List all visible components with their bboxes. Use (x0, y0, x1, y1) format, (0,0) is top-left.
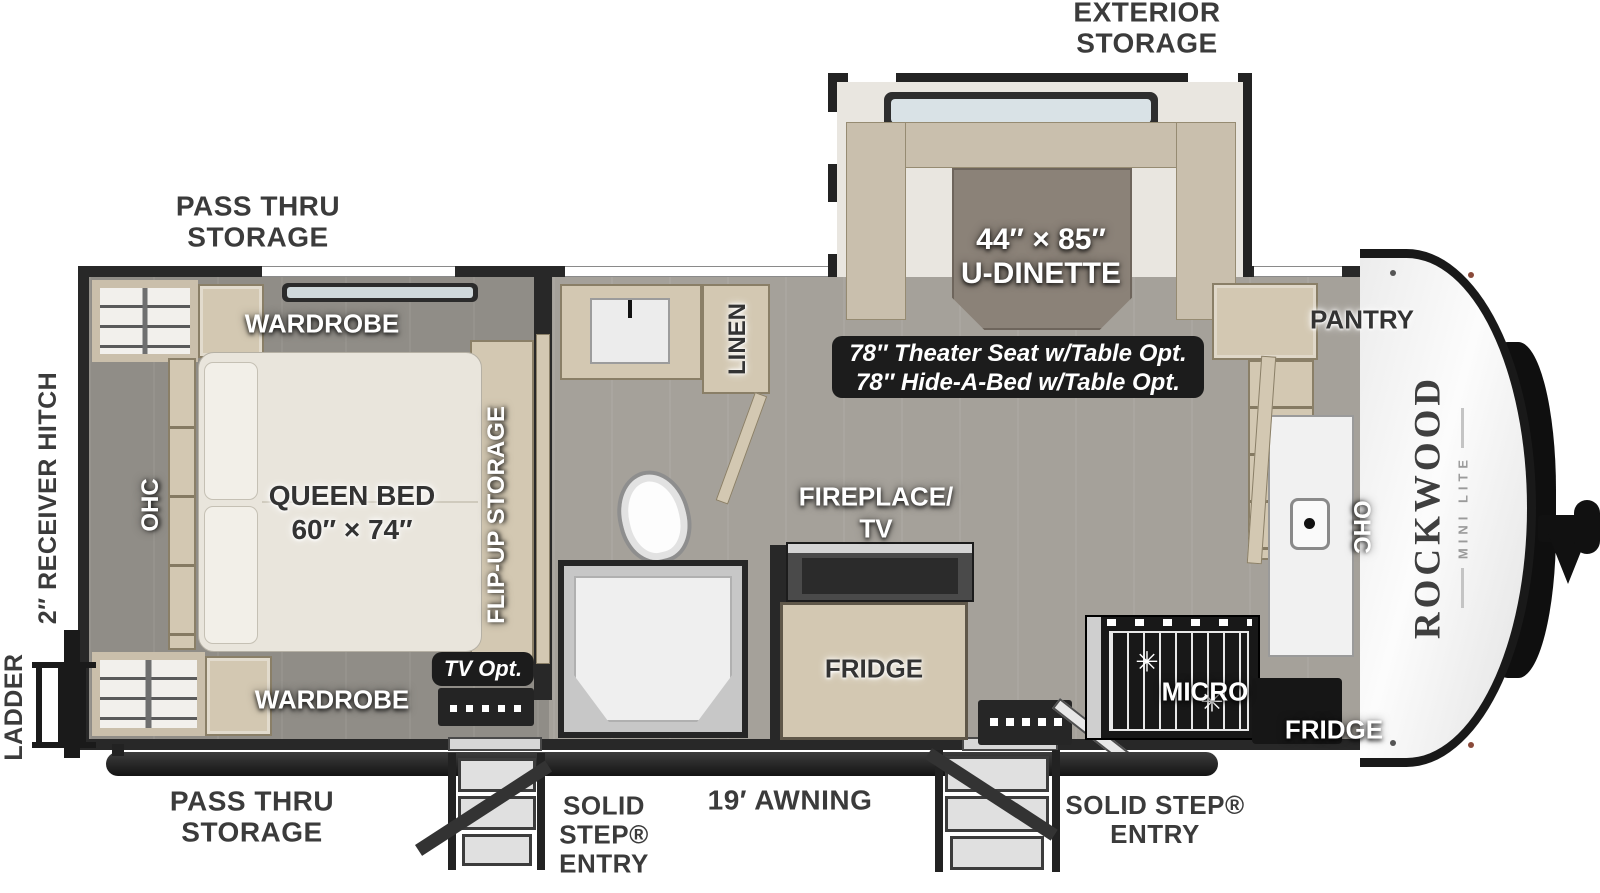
awning-label: 19′ AWNING (708, 784, 873, 815)
pantry-label: PANTRY (1310, 305, 1414, 336)
flip-up-storage-label: FLIP-UP STORAGE (483, 406, 511, 624)
bedroom-tv-dash-3 (482, 705, 489, 712)
floorplan-canvas: 44″ × 85″ U-DINETTE (0, 0, 1600, 893)
bedroom-tv-dash-1 (450, 705, 457, 712)
entry-right-line2: ENTRY (1065, 820, 1244, 849)
cap-rivet-bottom (1390, 740, 1396, 746)
island-fridge-label: FRIDGE (825, 654, 923, 685)
pass-thru-top-line1: PASS THRU (176, 191, 340, 222)
bedroom-tv-dash-4 (498, 705, 505, 712)
options-line-2: 78″ Hide-A-Bed w/Table Opt. (832, 368, 1204, 397)
fireplace-tv-console (786, 542, 974, 602)
step-tread-2c (950, 836, 1044, 870)
slide-skylight-glass (891, 99, 1151, 123)
entry-right-label: SOLID STEP® ENTRY (1065, 791, 1244, 849)
bedroom-ohc-label: OHC (137, 478, 165, 531)
entry-left-line2: STEP® (559, 820, 649, 849)
bedroom-tv-dash-2 (466, 705, 473, 712)
slide-window-left-1 (828, 112, 837, 164)
step-tread-1c (462, 834, 532, 866)
slide-window-top-1 (848, 73, 896, 82)
dinette-bench-left (846, 122, 906, 320)
queen-bed-label: QUEEN BED (269, 480, 435, 512)
pass-thru-bottom-label: PASS THRU STORAGE (170, 786, 334, 849)
options-badge: 78″ Theater Seat w/Table Opt. 78″ Hide-A… (832, 336, 1204, 398)
brand-rule-top (1461, 408, 1464, 448)
dinette-name-label: U-DINETTE (961, 257, 1121, 291)
micro-label: MICRO (1162, 677, 1249, 708)
burner-fan-icon: ✳ (1135, 646, 1158, 679)
pantry-cabinet (1212, 283, 1318, 360)
fireplace-label-line2: TV (859, 514, 892, 545)
pass-thru-bottom-line2: STORAGE (170, 817, 334, 848)
brand-rule-bottom (1461, 568, 1464, 608)
pass-thru-bottom-line1: PASS THRU (170, 786, 334, 817)
shower (558, 560, 748, 738)
entry-dash-3 (1022, 718, 1030, 726)
fireplace-label-line1: FIREPLACE/ (799, 482, 954, 513)
cap-marker-top (1468, 272, 1474, 278)
queen-bed-size-label: 60″ × 74″ (291, 514, 412, 546)
tv-opt-badge: TV Opt. (432, 652, 534, 686)
bedroom-tv-dash-5 (514, 705, 521, 712)
entry-dash-1 (990, 718, 998, 726)
exterior-storage-line2: STORAGE (1073, 28, 1220, 59)
ladder-icon-rung-3 (80, 662, 86, 748)
step-rail-right-2 (1052, 750, 1060, 872)
slide-window-left-2 (828, 202, 837, 254)
window-bath-top (565, 266, 830, 277)
pass-thru-top-label: PASS THRU STORAGE (176, 191, 340, 254)
ladder-label: LADDER (0, 653, 28, 760)
wardrobe-bottom-label: WARDROBE (255, 685, 410, 716)
entry-left-line3: ENTRY (559, 850, 649, 879)
entry-right-line1: SOLID STEP® (1065, 791, 1244, 820)
stove-side (1087, 617, 1101, 738)
pillow-top (204, 362, 258, 500)
receiver-hitch-label: 2″ RECEIVER HITCH (34, 372, 62, 624)
options-line-1: 78″ Theater Seat w/Table Opt. (832, 339, 1204, 368)
step-rail-left-1 (448, 753, 456, 870)
exterior-storage-label: EXTERIOR STORAGE (1073, 0, 1220, 59)
entry-left-label: SOLID STEP® ENTRY (559, 791, 649, 878)
bedroom-skylight (282, 283, 478, 302)
cap-rivet-top (1390, 270, 1396, 276)
kitchen-ohc-label: OHC (1347, 500, 1375, 553)
slide-window-top-2 (1188, 73, 1238, 82)
awning-bracket (112, 744, 124, 756)
entry-left-line1: SOLID (559, 791, 649, 820)
entry-dash-4 (1038, 718, 1046, 726)
window-kitchen-top (1254, 266, 1342, 277)
pass-thru-top-line2: STORAGE (176, 222, 340, 253)
wardrobe-top-label: WARDROBE (245, 309, 400, 340)
shelf-rear-bottom (92, 652, 205, 736)
entry-dash-2 (1006, 718, 1014, 726)
entry-dash-5 (1054, 718, 1062, 726)
bath-faucet-icon (628, 300, 632, 318)
stove-knobs (1107, 619, 1252, 626)
fireplace-mantel (788, 544, 972, 553)
rear-bumper (64, 630, 80, 758)
brand-model: MINI LITE (1456, 455, 1471, 559)
cap-marker-bottom (1468, 742, 1474, 748)
bedroom-ohc-cabinet (168, 358, 196, 650)
bedroom-skylight-glass (287, 287, 473, 298)
ladder-icon-rung-1 (36, 662, 42, 748)
shower-pan (574, 576, 732, 722)
front-fridge-label: FRIDGE (1285, 715, 1383, 746)
dinette-size-label: 44″ × 85″ (976, 223, 1106, 257)
exterior-storage-line1: EXTERIOR (1073, 0, 1220, 28)
linen-label: LINEN (724, 303, 752, 375)
shelf-rear-top (92, 280, 198, 362)
hitch-coupler (1574, 500, 1600, 554)
ladder-icon-rung-2 (58, 662, 64, 748)
window-bedroom-top (262, 266, 455, 277)
brand-name: ROCKWOOD (1407, 375, 1450, 639)
fireplace-screen (802, 558, 958, 594)
flip-up-storage-door (536, 334, 550, 664)
pillow-bottom (204, 506, 258, 644)
doorway-left (448, 737, 542, 751)
kitchen-faucet-icon (1304, 518, 1315, 529)
